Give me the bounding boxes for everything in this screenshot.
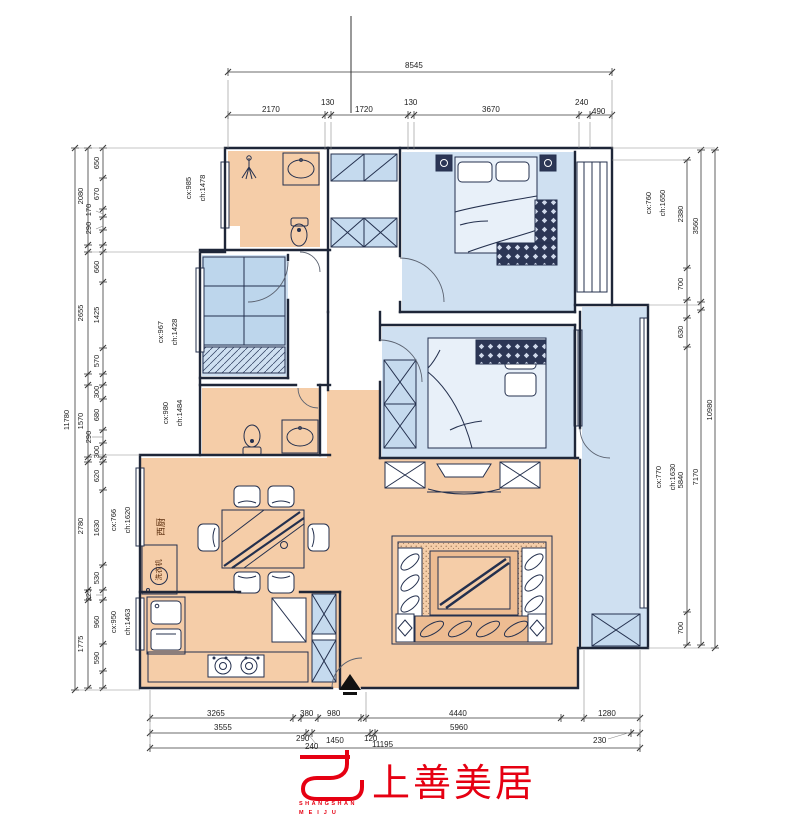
brand-name-en-line2: MEIJU [299, 810, 341, 816]
bed-2 [428, 338, 546, 448]
dim-right-l3-2: 630 [675, 312, 685, 352]
dim-left-l3-15: 960 [91, 602, 101, 642]
dim-left-l2-3: 2780 [75, 506, 85, 546]
room-label-kitchen-cx: cx:950 [108, 602, 118, 642]
brand-name-cn: 上善美居 [372, 752, 536, 807]
dim-bottom-r2-2: 1450 [326, 736, 344, 746]
dim-left-l3-16: 590 [91, 638, 101, 678]
dim-bottom-r2-4: 5960 [450, 723, 468, 733]
floorplan-page: 8545 2170 130 1720 130 3670 240 490 1178… [0, 0, 800, 821]
dim-right-l3-4: 700 [675, 608, 685, 648]
dim-left-l3-5: 1425 [91, 295, 101, 335]
dim-top-0: 2170 [262, 105, 280, 115]
dim-right-l3-0: 2380 [675, 194, 685, 234]
dim-top-3: 130 [404, 98, 417, 108]
room-label-westkitchen-ch: ch:1620 [122, 500, 132, 540]
dim-top-6: 490 [592, 107, 605, 117]
dim-bottom-r1-2: 980 [327, 709, 340, 719]
dim-top-5: 240 [575, 98, 588, 108]
dim-bottom-extra: 240 [305, 742, 318, 752]
dim-left-l3-11: 620 [91, 456, 101, 496]
dim-left-total: 11780 [61, 400, 71, 440]
wardrobe-top [331, 154, 397, 181]
window-bedroom1 [577, 162, 607, 292]
dim-top-2: 1720 [355, 105, 373, 115]
wardrobe-bedroom2 [384, 360, 416, 448]
room-label-balcony-ch: ch:1630 [667, 457, 677, 497]
dim-left-l2-1: 2655 [75, 293, 85, 333]
wardrobe-bottom [331, 218, 397, 247]
dim-right-total: 10980 [704, 390, 714, 430]
dim-top-4: 3670 [482, 105, 500, 115]
dim-bottom-r1-3: 4440 [449, 709, 467, 719]
room-label-cloak-ch: ch:1428 [169, 312, 179, 352]
dim-top-total: 8545 [405, 61, 423, 71]
room-label-bath1-cx: cx:985 [183, 168, 193, 208]
dim-left-l3-12: 1630 [91, 508, 101, 548]
washing-machine-label: 洗衣机 [153, 550, 165, 590]
west-kitchen-label: 西厨 [154, 507, 166, 547]
cloak-shelves [203, 257, 285, 373]
room-label-bath2-cx: cx:980 [160, 393, 170, 433]
dim-right-l2-0: 3560 [690, 206, 700, 246]
dim-left-l3-3: 290 [83, 208, 93, 248]
dim-left-l3-4: 660 [91, 247, 101, 287]
room-label-bedroom1-ch: ch:1650 [657, 183, 667, 223]
room-label-kitchen-ch: ch:1463 [122, 602, 132, 642]
dim-right-l2-1: 7170 [690, 457, 700, 497]
dim-right-l3-1: 700 [675, 264, 685, 304]
dim-left-l2-4: 1775 [75, 624, 85, 664]
dim-bottom-r1-4: 1280 [598, 709, 616, 719]
room-label-bedroom1-cx: cx:760 [643, 183, 653, 223]
dim-bottom-r1-0: 3265 [207, 709, 225, 719]
brand-name-en-line1: SHANGSHAN [299, 801, 357, 807]
room-label-cloak-cx: cx:967 [155, 312, 165, 352]
dim-bottom-total: 11195 [372, 740, 393, 750]
sofa-set [392, 536, 552, 644]
door-bath1 [300, 252, 320, 272]
dim-bottom-r2-5: 230 [593, 736, 606, 746]
floorplan-drawing [0, 0, 800, 821]
room-label-bath1-ch: ch:1478 [197, 168, 207, 208]
room-label-balcony-cx: cx:770 [653, 457, 663, 497]
balcony-cabinet [592, 614, 640, 646]
room-label-bath2-ch: ch:1484 [174, 393, 184, 433]
room-label-westkitchen-cx: cx:766 [108, 500, 118, 540]
brand-logo-mark [302, 752, 362, 799]
dim-top-1: 130 [321, 98, 334, 108]
dim-bottom-r2-0: 3555 [214, 723, 232, 733]
dim-bottom-r1-1: 380 [300, 709, 313, 719]
